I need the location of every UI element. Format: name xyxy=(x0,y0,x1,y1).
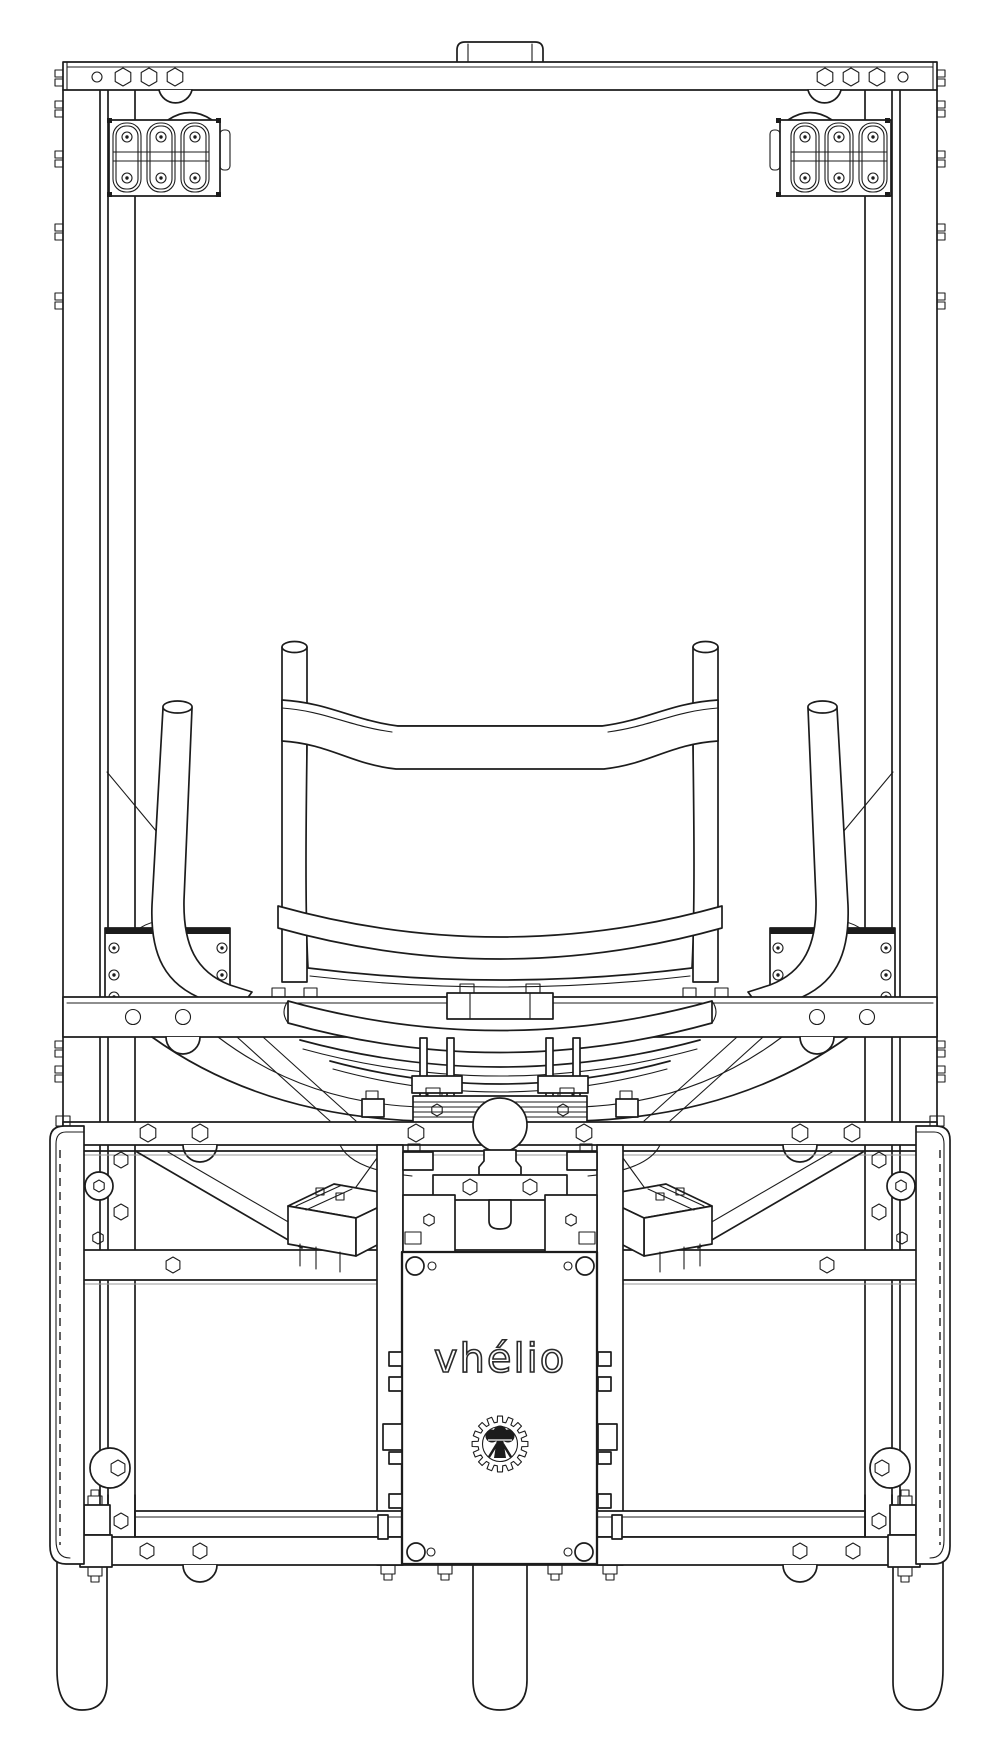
center-plate: vhélio xyxy=(402,1252,597,1564)
seat-center-bracket xyxy=(447,984,553,1019)
seat-assembly xyxy=(278,642,722,1104)
column-clamp xyxy=(378,1515,388,1539)
center-wheel xyxy=(473,1560,527,1710)
tow-ball-assembly xyxy=(473,1098,527,1175)
left-fender xyxy=(50,1116,84,1564)
roof-tab xyxy=(457,42,543,62)
right-hinge-bracket xyxy=(770,113,891,198)
technical-drawing: vhélio xyxy=(0,0,1008,1756)
tow-ball xyxy=(473,1098,527,1152)
column-clamp xyxy=(612,1515,622,1539)
brand-wordmark: vhélio xyxy=(434,1336,566,1382)
left-hinge-bracket xyxy=(107,113,230,198)
roof-top-bar xyxy=(63,42,937,103)
right-fender xyxy=(916,1116,950,1564)
